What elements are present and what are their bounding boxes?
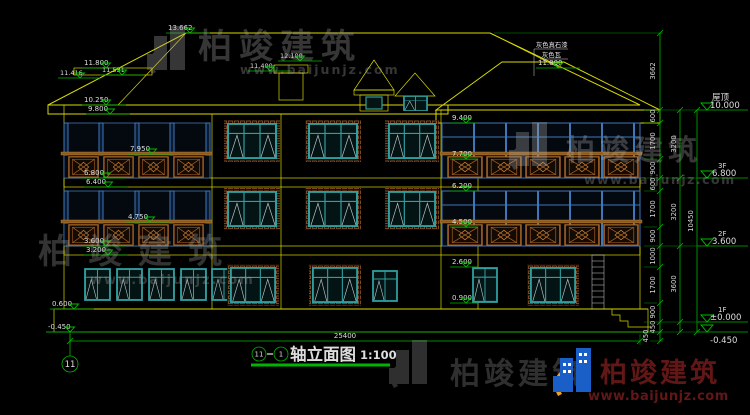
floor-level-markers: 屋顶 10.000 3F 6.800 2F 3.600 1F ±0.000 -0… [698, 93, 748, 346]
windows-3f [224, 120, 439, 162]
watermark-url: www.baijunjz.com [588, 389, 729, 404]
dim-detail: 450 [642, 330, 650, 343]
axis-bubble-number: 11 [65, 360, 76, 370]
dim-detail: 1000 [649, 247, 657, 264]
title-axis-start: 11 [255, 351, 264, 359]
drawing-title: 11 1 轴立面图 1:100 [251, 344, 397, 367]
watermark-brand: 柏竣建筑 [198, 27, 362, 67]
windows-2f [224, 188, 439, 230]
title-scale: 1:100 [360, 348, 397, 362]
dim-roof-height: 3662 [649, 62, 657, 79]
dim-detail: 900 [649, 230, 657, 243]
watermark-url: www.baijunjz.com [90, 273, 255, 288]
dim-floor: 3600 [670, 275, 678, 292]
bottom-dimension: 25400 [67, 332, 643, 345]
level-1f-value: ±0.000 [710, 313, 741, 323]
dim-detail: 900 [649, 306, 657, 319]
turret-window [366, 97, 382, 109]
dim-detail: 600 [649, 110, 657, 123]
dim-ticks [657, 30, 700, 344]
dim-detail: 450 [649, 321, 657, 334]
title-text: 轴立面图 [290, 344, 356, 364]
level-ground-value: -0.450 [710, 336, 737, 346]
watermark-brand: 柏竣建筑 [566, 133, 702, 167]
watermark-url: www.baijunjz.com [584, 172, 736, 187]
title-underline [251, 364, 390, 367]
corner-pilaster [592, 255, 604, 309]
level-2f-value: 3.600 [712, 237, 736, 247]
dim-detail: 1700 [649, 200, 657, 217]
entry-steps [604, 309, 650, 327]
watermark-url: www.baijunjz.com [240, 62, 400, 77]
plinth [54, 309, 648, 332]
note-gray-tile: 灰色瓦 [542, 50, 562, 59]
watermark-brand: 柏竣建筑 [600, 357, 720, 389]
note-stone-paint: 灰色真石漆 [536, 40, 568, 49]
level-roof-value: 10.000 [710, 101, 740, 111]
dim-detail: 1700 [649, 276, 657, 293]
floor-band-3f [64, 178, 640, 187]
title-axis-end: 1 [279, 351, 283, 359]
watermark-brand: 柏竣建筑 [38, 232, 238, 272]
watermark-top: 柏竣建筑 www.baijunjz.com [147, 26, 400, 77]
dim-total-width: 25400 [334, 332, 356, 340]
material-notes: 灰色真石漆 灰色瓦 [534, 40, 568, 76]
cad-canvas: 3662 600 1700 900 600 1700 900 1000 1700… [0, 0, 750, 415]
dormer-window [404, 96, 427, 110]
dim-total-height: 10450 [687, 210, 695, 232]
axis-bubble: 11 [62, 332, 78, 372]
watermark-mid-left: 柏竣建筑 www.baijunjz.com [38, 232, 255, 288]
dim-floor: 3200 [670, 203, 678, 220]
watermark-bottom-color: 柏竣建筑 www.baijunjz.com [553, 348, 729, 404]
